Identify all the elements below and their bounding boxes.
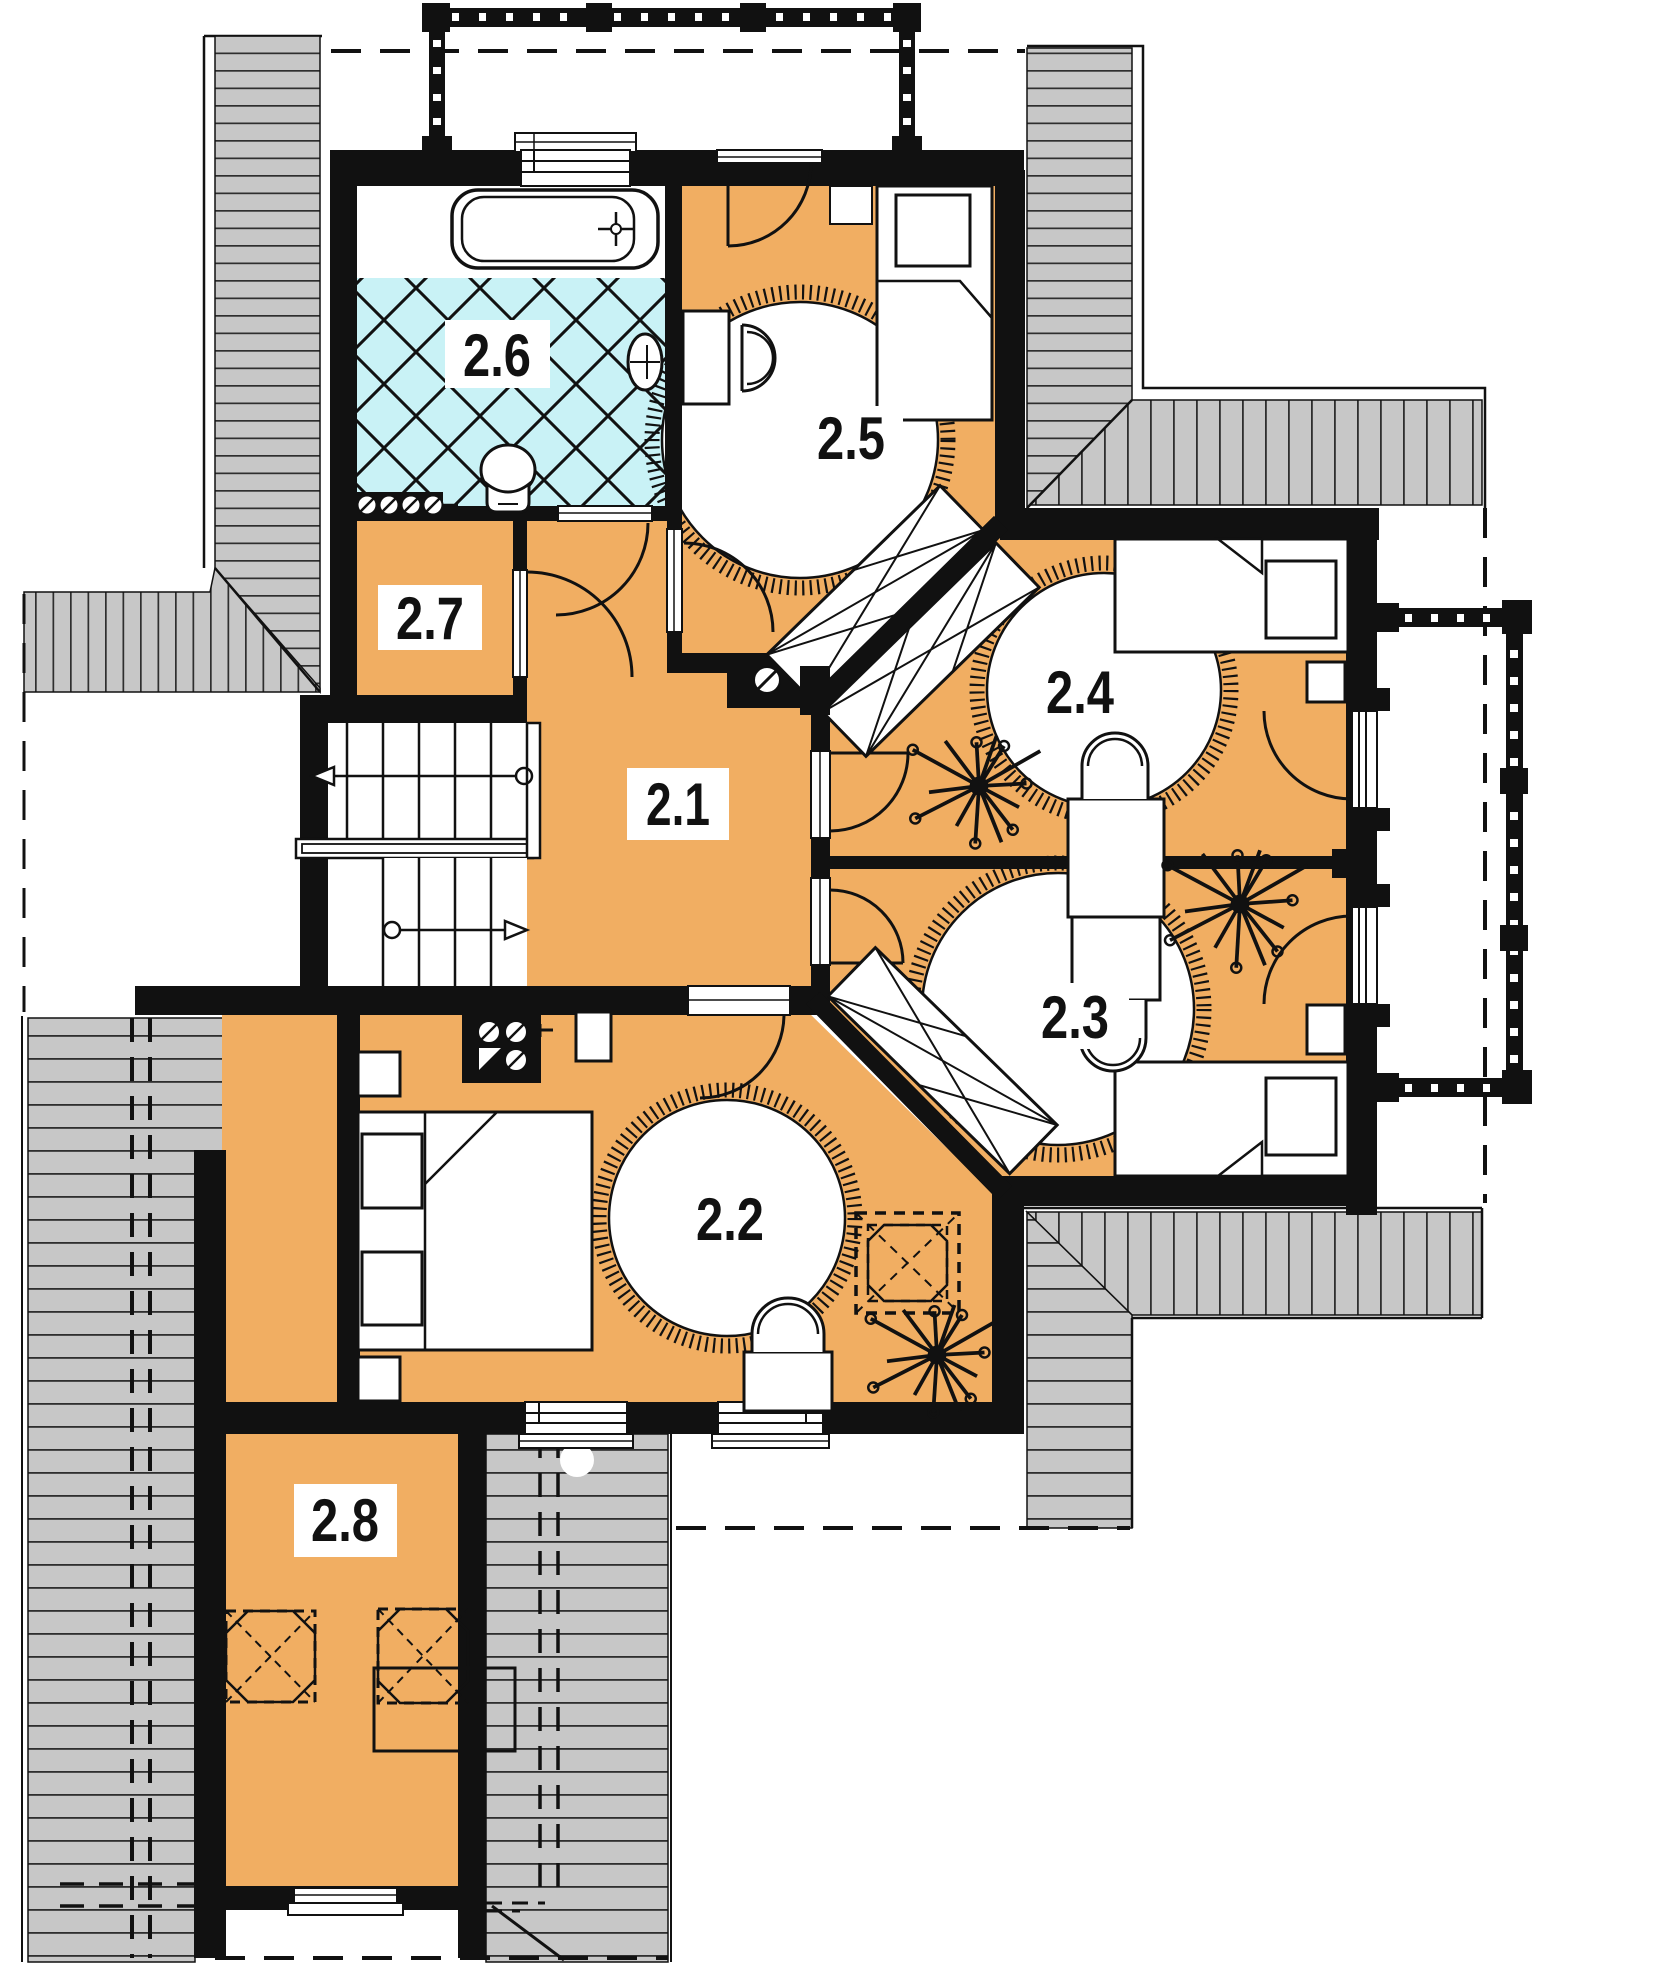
svg-text:2.6: 2.6 [463, 322, 531, 389]
svg-text:2.8: 2.8 [311, 1487, 379, 1554]
svg-text:2.1: 2.1 [646, 771, 710, 838]
svg-text:2.5: 2.5 [817, 405, 885, 472]
svg-text:2.2: 2.2 [696, 1186, 764, 1253]
svg-text:2.3: 2.3 [1041, 984, 1109, 1051]
svg-text:2.4: 2.4 [1046, 659, 1115, 726]
svg-text:2.7: 2.7 [396, 585, 464, 652]
